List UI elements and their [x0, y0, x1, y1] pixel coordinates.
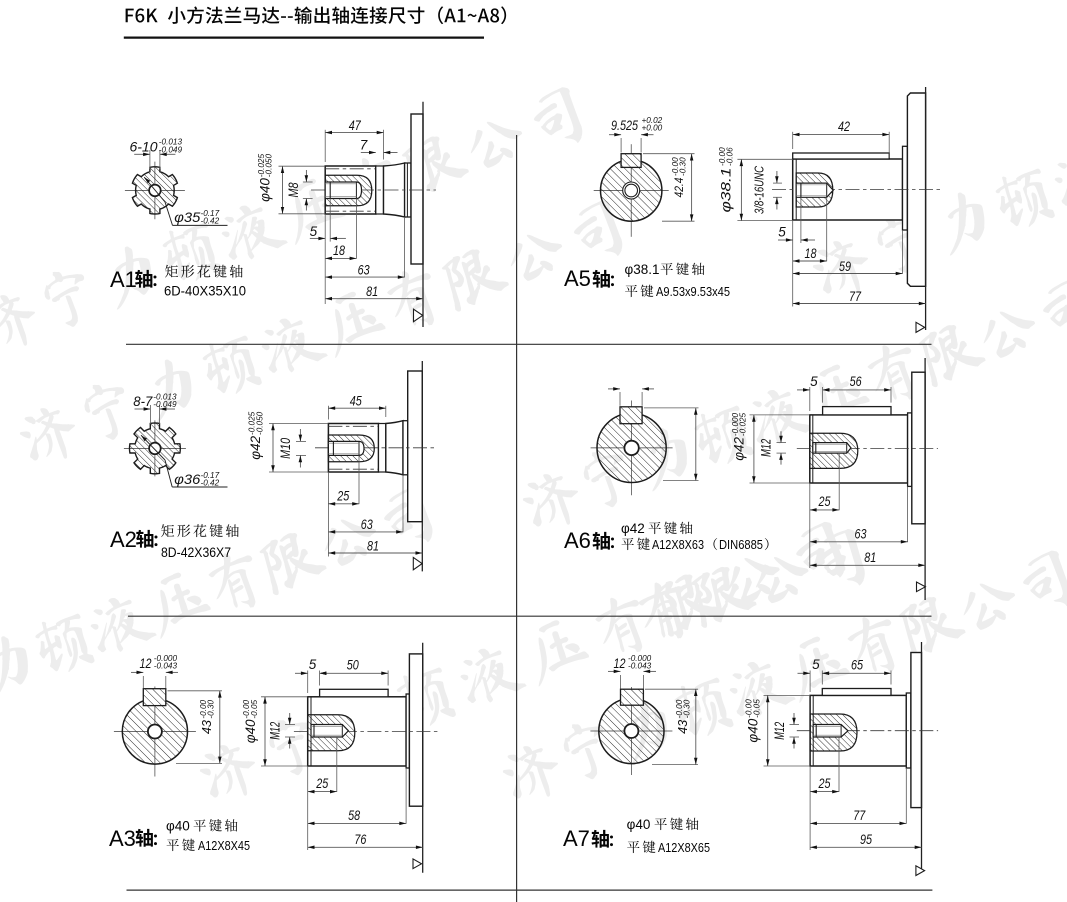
- svg-text:43: 43: [676, 720, 690, 734]
- svg-text:77: 77: [849, 288, 862, 304]
- svg-text:63: 63: [855, 525, 867, 541]
- svg-text:8D-42X36X7: 8D-42X36X7: [161, 544, 231, 560]
- svg-text:-0.06: -0.06: [726, 147, 735, 166]
- svg-text:A3: A3: [109, 826, 136, 851]
- svg-text:M8: M8: [286, 182, 301, 197]
- svg-text:12: 12: [140, 656, 152, 671]
- svg-text:42: 42: [838, 118, 850, 134]
- svg-text:-0.025: -0.025: [739, 412, 748, 436]
- svg-text:A2: A2: [110, 527, 137, 552]
- svg-text:6D-40X35X10: 6D-40X35X10: [164, 283, 246, 299]
- svg-text:-0.050: -0.050: [265, 154, 274, 178]
- svg-text:43: 43: [200, 720, 214, 734]
- svg-text:DIN6885: DIN6885: [719, 537, 763, 552]
- svg-text:6-10: 6-10: [130, 139, 158, 154]
- svg-text:63: 63: [361, 516, 373, 532]
- svg-text:25: 25: [316, 775, 329, 791]
- svg-text:φ38.1: φ38.1: [719, 168, 734, 213]
- svg-text:-0.30: -0.30: [679, 157, 688, 176]
- svg-text:φ40: φ40: [627, 817, 651, 832]
- svg-text:-0.05: -0.05: [753, 699, 762, 718]
- svg-text:45: 45: [350, 392, 362, 408]
- svg-text:47: 47: [349, 117, 362, 133]
- svg-text:65: 65: [851, 657, 863, 673]
- svg-text:5: 5: [778, 225, 786, 240]
- svg-text:63: 63: [358, 262, 370, 278]
- svg-text:12: 12: [614, 656, 626, 671]
- svg-text:A7: A7: [563, 826, 590, 851]
- svg-text:25: 25: [818, 775, 831, 791]
- svg-text:76: 76: [354, 831, 366, 847]
- svg-text:A12X8X65: A12X8X65: [658, 840, 710, 855]
- svg-text:A12X8X45: A12X8X45: [198, 838, 250, 853]
- svg-text:95: 95: [860, 831, 872, 847]
- svg-text:-0.049: -0.049: [159, 145, 183, 154]
- svg-text:φ42: φ42: [248, 435, 263, 459]
- svg-text:A12X8X63: A12X8X63: [652, 537, 704, 552]
- svg-text:18: 18: [333, 242, 345, 258]
- svg-text:58: 58: [348, 807, 360, 823]
- svg-text:M12: M12: [268, 721, 283, 739]
- svg-text:77: 77: [853, 807, 866, 823]
- svg-text:81: 81: [366, 283, 378, 299]
- svg-text:9.525: 9.525: [611, 118, 638, 133]
- svg-text:φ35: φ35: [174, 209, 200, 225]
- svg-text:A1: A1: [110, 267, 137, 292]
- svg-text:φ42: φ42: [732, 436, 747, 460]
- svg-text:φ40: φ40: [745, 718, 760, 742]
- svg-text:8-7: 8-7: [133, 394, 152, 409]
- svg-text:φ42: φ42: [621, 521, 645, 536]
- svg-text:7: 7: [360, 137, 368, 152]
- svg-text:-0.05: -0.05: [250, 699, 259, 718]
- svg-text:-0.42: -0.42: [201, 479, 220, 488]
- svg-text:42.4: 42.4: [672, 177, 686, 197]
- svg-text:5: 5: [310, 224, 318, 239]
- svg-text:-0.043: -0.043: [154, 662, 178, 671]
- svg-text:M12: M12: [759, 439, 774, 457]
- svg-text:A6: A6: [564, 528, 591, 553]
- svg-text:φ40: φ40: [243, 719, 258, 743]
- svg-text:φ40: φ40: [166, 819, 190, 834]
- svg-text:A5: A5: [564, 266, 591, 291]
- svg-text:-0.30: -0.30: [683, 699, 692, 718]
- svg-text:56: 56: [850, 373, 862, 389]
- svg-text:25: 25: [336, 488, 349, 504]
- svg-text:-0.043: -0.043: [628, 662, 652, 671]
- svg-text:A9.53x9.53x45: A9.53x9.53x45: [656, 284, 730, 299]
- svg-text:5: 5: [810, 374, 818, 389]
- svg-text:φ38.1: φ38.1: [625, 262, 660, 277]
- svg-text:-0.42: -0.42: [201, 217, 220, 226]
- svg-text:50: 50: [347, 657, 359, 673]
- svg-text:5: 5: [812, 657, 820, 672]
- svg-text:25: 25: [818, 493, 831, 509]
- svg-text:-0.050: -0.050: [255, 411, 264, 435]
- svg-text:59: 59: [839, 258, 851, 274]
- svg-text:-0.049: -0.049: [153, 400, 177, 409]
- svg-text:5: 5: [309, 657, 317, 672]
- svg-text:φ36: φ36: [174, 471, 200, 487]
- svg-text:-0.30: -0.30: [207, 699, 216, 718]
- svg-text:18: 18: [805, 245, 817, 261]
- svg-text:81: 81: [367, 537, 379, 553]
- svg-text:+0.00: +0.00: [642, 124, 663, 133]
- svg-text:M10: M10: [278, 438, 293, 459]
- svg-text:φ40: φ40: [258, 178, 273, 202]
- svg-text:81: 81: [864, 549, 876, 565]
- svg-text:3/8-16UNC: 3/8-16UNC: [752, 166, 767, 214]
- svg-text:M12: M12: [772, 721, 787, 739]
